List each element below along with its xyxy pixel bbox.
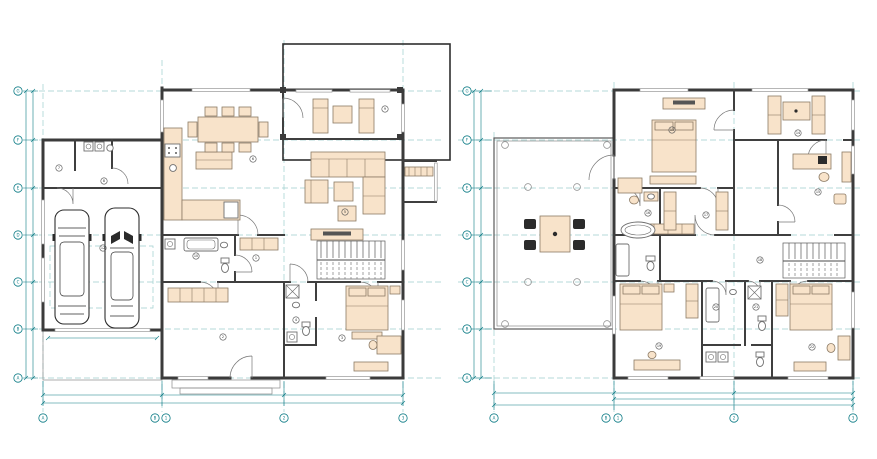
grid-bubble: E	[463, 184, 471, 192]
svg-text:G: G	[465, 89, 468, 94]
hall-and-bath	[165, 238, 278, 273]
grid-bubble: C	[463, 278, 471, 286]
svg-text:21: 21	[754, 305, 758, 309]
floor-plan-drawing: AB123 GFEDCBA 7812659234110	[0, 0, 877, 459]
toilet	[647, 262, 654, 271]
svg-text:9: 9	[384, 107, 386, 111]
room-number: 15	[815, 189, 821, 195]
room-number: 7	[56, 165, 62, 171]
sink	[648, 194, 655, 199]
terrace-chair	[524, 240, 536, 250]
svg-text:16: 16	[646, 211, 650, 215]
veranda-table	[333, 106, 352, 123]
grid-bubble: G	[14, 87, 22, 95]
svg-text:17: 17	[704, 213, 708, 217]
grid-bubble: A	[39, 414, 47, 422]
grid-bubble: B	[151, 414, 159, 422]
kitchen-sink	[170, 165, 177, 172]
svg-text:G: G	[16, 89, 19, 94]
toilet	[757, 358, 764, 367]
dryer	[718, 352, 728, 362]
desk	[377, 336, 401, 354]
grid-bubble: 3	[399, 414, 407, 422]
svg-text:7: 7	[58, 166, 60, 170]
svg-text:5: 5	[344, 210, 346, 214]
nightstand	[390, 286, 400, 294]
washer	[165, 239, 175, 249]
washer	[706, 352, 716, 362]
svg-text:3: 3	[852, 416, 855, 421]
cabinet	[842, 152, 851, 182]
kitchen-counter	[164, 128, 182, 220]
svg-text:22: 22	[810, 345, 814, 349]
grid-bubble: A	[463, 374, 471, 382]
armchair	[305, 180, 328, 203]
svg-text:13: 13	[670, 128, 674, 132]
lounge-chair	[359, 99, 374, 133]
stool	[827, 344, 835, 353]
svg-text:8: 8	[103, 179, 105, 183]
grid-bubble: 1	[614, 414, 622, 422]
svg-text:A: A	[493, 416, 496, 421]
toilet	[303, 327, 310, 336]
stairs-ground	[317, 241, 385, 279]
hall-wardrobe	[240, 238, 278, 250]
dresser	[354, 362, 388, 371]
grid-bubble: 2	[280, 414, 288, 422]
grid-bubble: F	[463, 136, 471, 144]
master-bedroom	[618, 98, 705, 234]
svg-text:A: A	[466, 376, 469, 381]
grid-bubble: 3	[849, 414, 857, 422]
room-number: 16	[645, 210, 651, 216]
svg-text:A: A	[17, 376, 20, 381]
svg-text:18: 18	[758, 258, 762, 262]
grid-bubble: B	[602, 414, 610, 422]
sink	[730, 289, 737, 294]
row-bubbles-ground: GFEDCBA	[14, 87, 22, 382]
toilet	[759, 322, 766, 331]
room-number: 8	[101, 178, 107, 184]
grid-bubble: E	[14, 184, 22, 192]
stairs-first	[783, 243, 845, 278]
svg-text:D: D	[16, 233, 19, 238]
utility-room	[84, 142, 113, 151]
desk	[634, 360, 680, 370]
svg-text:3: 3	[402, 416, 405, 421]
vanity-desk	[838, 336, 850, 360]
terrace-chair	[573, 240, 585, 250]
bedroom-ground	[346, 286, 401, 371]
grid-bubble: A	[14, 374, 22, 382]
wardrobe	[168, 288, 228, 302]
grid-bubble: G	[463, 87, 471, 95]
driveway-patio	[43, 330, 162, 380]
nightstand	[664, 284, 674, 292]
svg-text:B: B	[154, 416, 157, 421]
bed-bench	[650, 176, 696, 184]
dining-table	[198, 117, 258, 142]
grid-bubble: B	[463, 325, 471, 333]
pouf	[338, 206, 356, 221]
guest-chair	[834, 194, 846, 204]
washer	[287, 332, 297, 342]
svg-text:1: 1	[617, 416, 620, 421]
svg-text:3: 3	[341, 336, 343, 340]
grid-bubble: A	[490, 414, 498, 422]
bathroom-ground	[286, 285, 310, 342]
svg-text:D: D	[465, 233, 468, 238]
room-number: 21	[753, 304, 759, 310]
grid-bubble: D	[14, 231, 22, 239]
room-number: 19	[656, 343, 662, 349]
kitchen-island	[196, 152, 232, 169]
room-number: 18	[757, 257, 763, 263]
sofa	[311, 152, 385, 177]
svg-text:19: 19	[657, 344, 661, 348]
oval-bathtub	[621, 222, 655, 238]
bedroom-right	[776, 284, 850, 371]
grid-bubble: 1	[162, 414, 170, 422]
room-number: 3	[339, 335, 345, 341]
bedroom-left	[620, 284, 698, 370]
tv	[323, 232, 351, 236]
terrace-chair	[573, 219, 585, 229]
sink	[292, 302, 299, 308]
chair	[648, 351, 656, 358]
room-number: 14	[795, 130, 801, 136]
svg-text:10: 10	[194, 254, 198, 258]
room-number: 17	[703, 212, 709, 218]
grid-bubble: 2	[730, 414, 738, 422]
svg-text:20: 20	[714, 305, 718, 309]
room-number: 2	[220, 334, 226, 340]
svg-text:A: A	[42, 416, 45, 421]
toilet	[222, 264, 229, 273]
floor-plan-sheet: AB123 GFEDCBA 7812659234110	[0, 0, 877, 459]
svg-text:C: C	[17, 280, 20, 285]
col-bubbles-ground: AB123	[39, 414, 407, 422]
toilet-tank	[758, 316, 766, 321]
room-number: 6	[250, 156, 256, 162]
chair	[369, 341, 377, 350]
svg-text:14: 14	[796, 131, 800, 135]
car-sedan	[103, 208, 142, 328]
svg-text:B: B	[466, 327, 469, 332]
entry-step-2	[180, 388, 272, 394]
svg-text:C: C	[466, 280, 469, 285]
wc-rooms	[706, 286, 766, 367]
svg-text:12: 12	[101, 246, 105, 250]
sink	[220, 242, 227, 248]
toilet-tank	[221, 258, 229, 263]
grid-bubble: C	[14, 278, 22, 286]
guest-room	[168, 288, 228, 302]
walk-in-closet	[664, 192, 728, 230]
svg-text:1: 1	[165, 416, 168, 421]
lounge-chair	[313, 99, 328, 133]
computer	[818, 156, 827, 164]
utility-sink	[107, 145, 113, 151]
terrace	[494, 138, 614, 329]
coffee-table	[334, 182, 353, 201]
ground-floor-plan: AB123 GFEDCBA 7812659234110	[14, 40, 450, 422]
svg-text:B: B	[605, 416, 608, 421]
room-number: 4	[293, 317, 299, 323]
svg-text:1: 1	[255, 256, 257, 260]
svg-text:4: 4	[295, 318, 297, 322]
living-room	[305, 152, 433, 240]
fridge	[224, 202, 238, 218]
svg-text:2: 2	[283, 416, 286, 421]
row-bubbles-first: GFEDCBA	[463, 87, 471, 382]
dresser	[794, 362, 826, 371]
svg-text:6: 6	[252, 157, 254, 161]
stove	[165, 144, 180, 157]
desk	[618, 178, 642, 193]
svg-text:B: B	[17, 327, 20, 332]
office-chair	[819, 173, 829, 182]
entry-step-1	[172, 380, 280, 388]
grid-bubble: D	[463, 231, 471, 239]
dining-set	[188, 107, 268, 152]
grid-bubble: B	[14, 325, 22, 333]
study-top	[768, 96, 825, 134]
chair	[630, 196, 639, 204]
veranda	[313, 99, 374, 133]
shower	[616, 244, 629, 276]
toilet-tank	[756, 352, 764, 357]
terrace-chair	[524, 219, 536, 229]
office-right	[793, 152, 851, 204]
svg-text:2: 2	[733, 416, 736, 421]
first-floor-plan: AB123 GFEDCBA 13141516171819202122	[458, 82, 860, 422]
garage	[50, 208, 153, 328]
car-suv	[53, 210, 92, 324]
svg-text:15: 15	[816, 190, 820, 194]
col-bubbles-first: AB123	[490, 414, 857, 422]
room-number: 22	[809, 344, 815, 350]
sofa-corner	[363, 177, 385, 214]
room-number: 9	[382, 106, 388, 112]
svg-text:2: 2	[222, 335, 224, 339]
toilet-tank	[646, 256, 655, 261]
room-number: 10	[193, 253, 199, 259]
grid-bubble: F	[14, 136, 22, 144]
room-number: 1	[253, 255, 259, 261]
grid-lines	[30, 40, 443, 412]
